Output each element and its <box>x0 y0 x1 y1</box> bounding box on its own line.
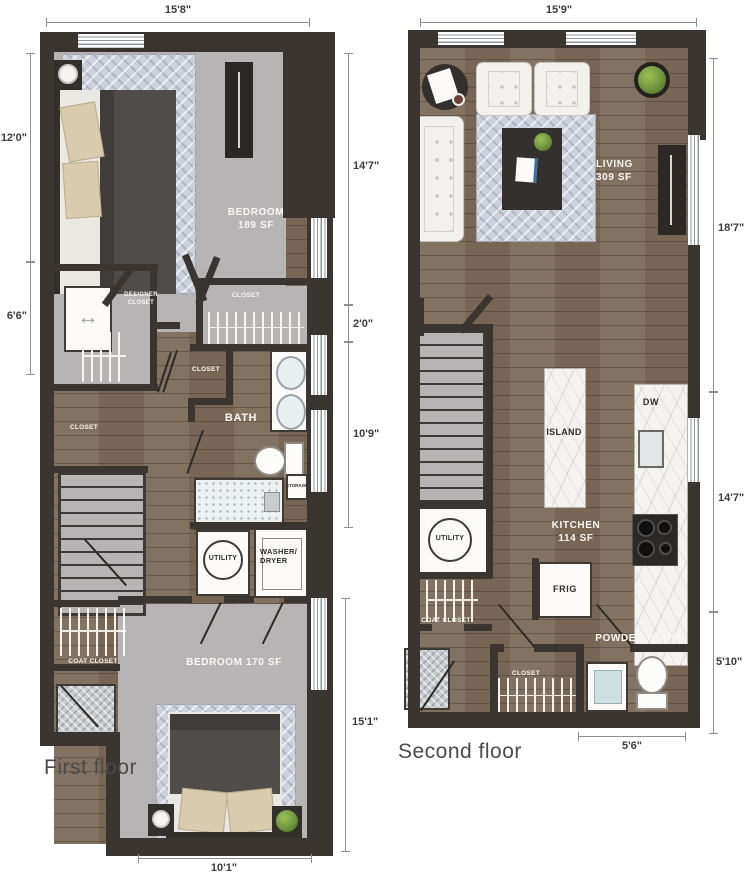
armchair-cushion <box>546 71 578 107</box>
interior-wall <box>190 522 310 529</box>
sofa-cushions <box>424 126 454 232</box>
interior-wall <box>150 322 180 329</box>
kitchen-name: KITCHEN <box>544 519 608 532</box>
interior-wall <box>576 648 584 716</box>
dim-bottom-first: 10'1" <box>194 862 254 874</box>
dim-left-upper: 12'0" <box>0 132 27 144</box>
dim-line <box>713 392 714 612</box>
second-floor-caption: Second floor <box>398 740 522 764</box>
hangers-icon <box>498 678 578 714</box>
bed2-duvet-fold <box>170 714 280 730</box>
room-label-closet-left: CLOSET <box>64 424 104 432</box>
dim-line <box>420 22 697 23</box>
stairs-second-floor <box>416 330 486 508</box>
dim-right-lower-first: 10'9" <box>353 428 393 440</box>
toilet-bowl-icon <box>636 656 668 694</box>
pillow-icon <box>226 788 276 835</box>
window-icon <box>688 418 700 482</box>
dim-right-upper-first: 14'7" <box>353 160 393 172</box>
interior-wall <box>226 350 233 404</box>
dim-top-first: 15'8" <box>150 4 206 16</box>
interior-wall <box>486 324 493 510</box>
dim-right-upper-second: 18'7" <box>718 222 750 234</box>
plant-icon <box>534 133 552 151</box>
floorplan-canvas: ↔ <box>0 0 750 881</box>
hangers-icon <box>426 580 478 622</box>
dim-line <box>30 262 31 375</box>
sink-icon <box>276 356 306 390</box>
book-icon <box>515 157 538 182</box>
interior-wall <box>486 502 493 578</box>
interior-wall <box>224 596 254 603</box>
dim-line <box>138 858 312 859</box>
dim-right-bottom-first: 15'1" <box>352 716 392 728</box>
interior-wall <box>414 572 492 579</box>
window-icon <box>311 218 327 278</box>
exterior-wall <box>688 30 706 140</box>
lamp-icon <box>152 810 170 828</box>
media-cabinet-icon <box>658 145 686 235</box>
hangers-icon <box>208 312 304 344</box>
lamp-icon <box>58 64 78 84</box>
burner-icon <box>659 542 672 555</box>
living-name: LIVING <box>596 158 648 171</box>
dim-line <box>348 53 349 305</box>
living-area: 309 SF <box>596 171 648 184</box>
hangers-icon <box>82 332 126 382</box>
window-icon <box>688 135 700 245</box>
dim-line <box>578 736 686 737</box>
exterior-wall <box>106 838 333 856</box>
bedroom1-name: BEDROOM <box>216 206 296 219</box>
toilet-tank-icon <box>636 692 668 710</box>
room-label-utility-first: UTILITY <box>196 555 250 564</box>
dishwasher-icon <box>638 430 664 468</box>
dim-line <box>713 612 714 734</box>
interior-wall <box>490 644 498 716</box>
exterior-wall <box>408 298 424 336</box>
dim-right-mid-first: 2'0" <box>353 318 389 330</box>
interior-wall <box>54 600 120 607</box>
double-arrow-icon: ↔ <box>64 306 112 328</box>
cup-icon <box>452 93 465 106</box>
shower-head-icon <box>264 492 280 512</box>
interior-wall <box>414 324 492 331</box>
room-label-utility-second: UTILITY <box>414 535 486 544</box>
cabinet-handle <box>670 155 672 225</box>
room-label-washer-dryer: WASHER/ DRYER <box>260 547 302 566</box>
exterior-wall <box>106 732 120 842</box>
burner-icon <box>657 520 672 535</box>
pillow-icon <box>178 788 228 835</box>
armchair-cushion <box>488 71 520 107</box>
room-label-bath: BATH <box>216 411 266 425</box>
dim-line <box>348 342 349 528</box>
exterior-wall <box>40 32 54 746</box>
wardrobe-handle <box>238 72 240 148</box>
room-label-bedroom2: BEDROOM 170 SF <box>172 656 296 669</box>
room-label-designer-closet: DESIGNER CLOSET <box>118 292 164 307</box>
interior-wall <box>414 502 492 509</box>
window-icon <box>438 32 504 45</box>
hangers-icon <box>60 608 126 656</box>
room-label-powder-room: POWDER ROOM <box>590 632 686 645</box>
dim-line <box>46 22 310 23</box>
burner-icon <box>637 540 655 558</box>
interior-wall <box>190 344 310 351</box>
window-icon <box>311 598 327 690</box>
interior-wall <box>196 278 308 285</box>
room-label-frig: FRIG <box>538 584 592 596</box>
window-icon <box>566 32 636 45</box>
interior-wall <box>118 596 192 603</box>
room-label-coat-closet-second: COAT CLOSET <box>412 617 480 625</box>
plant-icon <box>638 66 666 94</box>
room-label-bedroom1: BEDROOM 189 SF <box>216 206 296 232</box>
toilet-tank-icon <box>284 442 304 478</box>
plant-icon <box>276 810 298 832</box>
room-label-coat-closet-first: COAT CLOSET <box>62 658 124 666</box>
dim-line <box>348 305 349 342</box>
toilet-bowl-icon <box>254 446 286 476</box>
powder-basin <box>594 670 622 704</box>
pillow-icon <box>62 161 102 219</box>
first-floor-caption: First floor <box>44 756 137 780</box>
burner-icon <box>637 519 655 537</box>
room-label-closet-mid: CLOSET <box>186 366 226 374</box>
dim-left-lower: 6'6" <box>4 310 27 322</box>
dim-right-lower-second: 5'10" <box>716 656 750 668</box>
room-label-closet-right: CLOSET <box>226 292 266 300</box>
dim-top-second: 15'9" <box>534 4 584 16</box>
dim-line <box>713 58 714 392</box>
interior-wall <box>54 384 158 391</box>
interior-wall <box>54 466 148 473</box>
dim-right-mid-second: 14'7" <box>718 492 750 504</box>
room-label-closet-second: CLOSET <box>500 670 552 678</box>
kitchen-area: 114 SF <box>544 532 608 545</box>
room-label-storage: STORAGE <box>286 483 308 489</box>
stairs-first-floor <box>58 472 146 616</box>
room-label-kitchen: KITCHEN 114 SF <box>544 519 608 545</box>
room-label-island: ISLAND <box>544 427 584 439</box>
window-icon <box>311 335 327 395</box>
sink-icon <box>276 394 306 430</box>
dim-bottom-second: 5'6" <box>602 740 662 752</box>
bedroom1-area: 189 SF <box>216 219 296 232</box>
room-label-dw: DW <box>638 397 664 409</box>
interior-wall <box>54 264 158 271</box>
interior-wall <box>188 398 195 422</box>
exterior-wall <box>408 712 700 728</box>
window-icon <box>78 34 144 48</box>
dim-line <box>345 598 346 852</box>
dim-line <box>30 53 31 262</box>
room-label-living: LIVING 309 SF <box>596 158 648 184</box>
window-icon <box>311 410 327 492</box>
